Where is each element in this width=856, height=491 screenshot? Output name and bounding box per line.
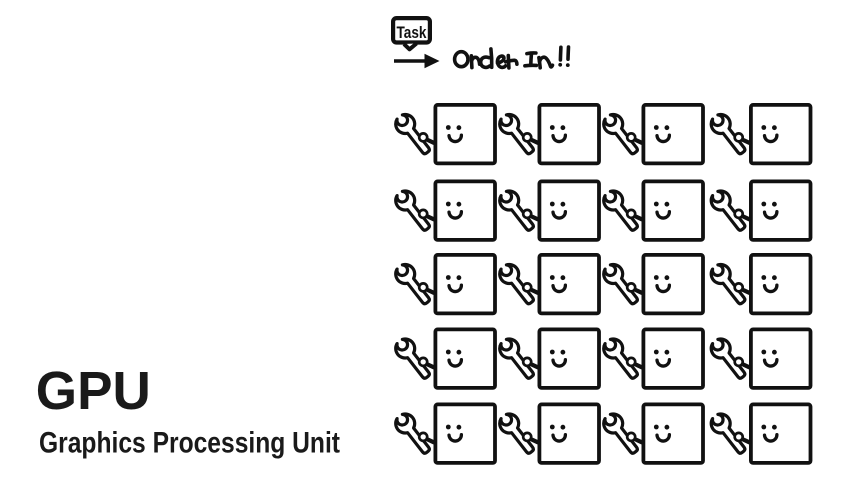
svg-text:GPU: GPU (36, 361, 151, 421)
svg-text:Task: Task (397, 24, 428, 42)
svg-text:Graphics Processing Unit: Graphics Processing Unit (39, 427, 340, 460)
